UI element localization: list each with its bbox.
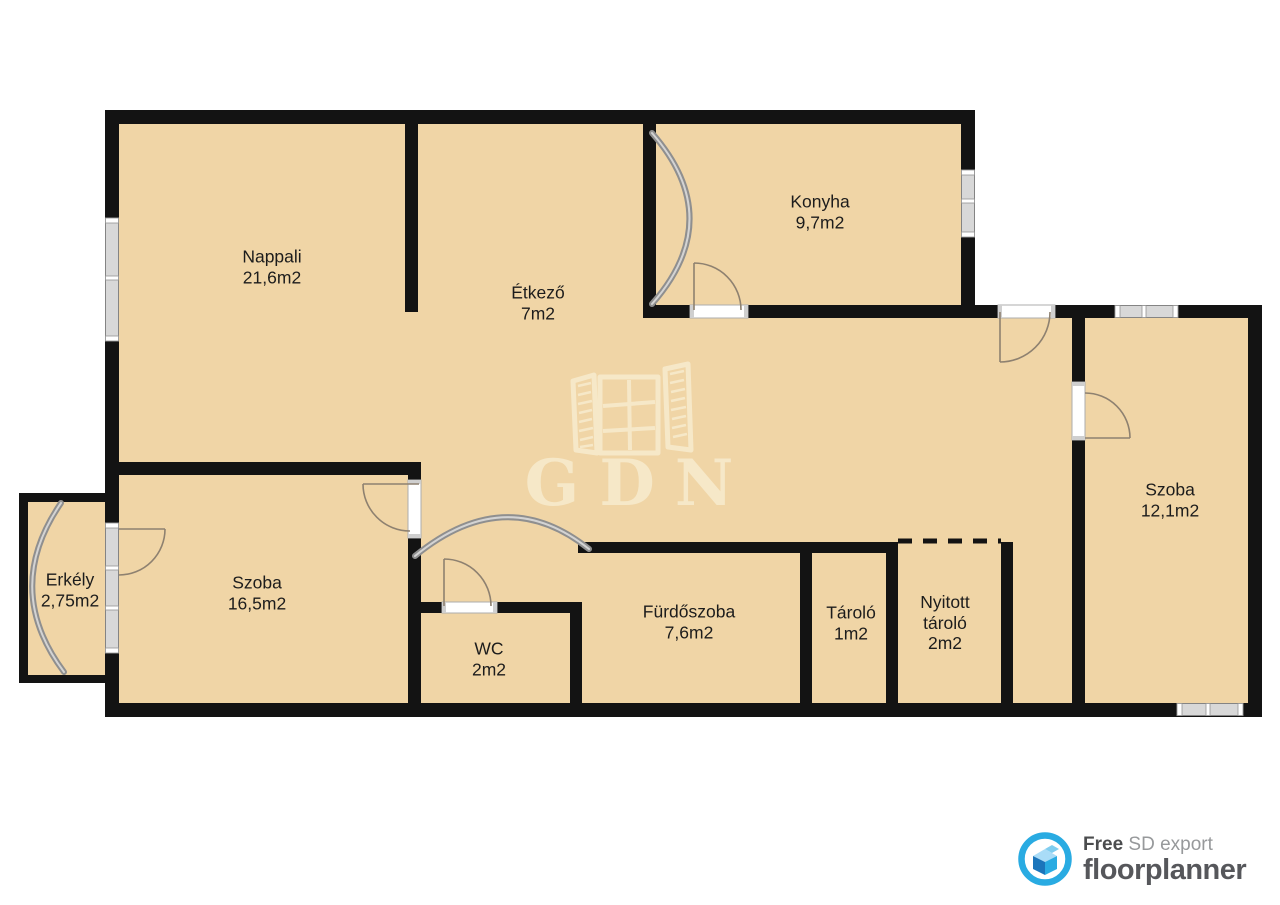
room-name: Nappali [242,246,301,267]
room-name: Erkély [41,569,99,590]
room-name: Fürdőszoba [643,601,735,622]
wall-bedroom-left [1072,318,1085,703]
window-livingroom-left [106,218,119,341]
room-name: Szoba [228,572,286,593]
room-area: 21,6m2 [242,267,301,288]
wall-bathroom-top [578,542,895,553]
room-name: Tároló [826,602,876,623]
floor-areas [27,124,1248,703]
room-label-furdoszoba: Fürdőszoba 7,6m2 [643,601,735,642]
room-area: 9,7m2 [790,212,849,233]
room-label-etkezo: Étkező 7m2 [511,282,565,323]
room-name: Étkező [511,282,565,303]
threshold-bedroom-door [1072,382,1085,440]
floorplanner-logo-icon [1016,830,1074,888]
wall-storage-left [800,542,812,703]
wall-livingroom-bottom [105,462,421,475]
wall-open-storage-right [1001,542,1013,703]
room-name: Nyitott tároló [908,592,982,633]
footer-free-label: Free [1083,834,1123,855]
room-label-szoba-12: Szoba 12,1m2 [1141,479,1199,520]
room-label-konyha: Konyha 9,7m2 [790,191,849,232]
watermark-text: GDN [525,446,754,521]
room-area: 2m2 [472,659,506,680]
room-area: 2m2 [908,633,982,654]
footer-brand-wordmark: floorplanner [1083,855,1246,885]
room-label-nappali: Nappali 21,6m2 [242,246,301,287]
room-label-tarolo: Tároló 1m2 [826,602,876,643]
room-name: Konyha [790,191,849,212]
wall-outer-top [105,110,975,124]
window-balcony-door [106,523,119,653]
room-label-wc: WC 2m2 [472,638,506,679]
footer-export-line: Free SD export [1083,834,1246,855]
wall-balcony-left [19,493,28,683]
room-area: 7,6m2 [643,622,735,643]
floorplan-canvas: GDN Nappali 21,6m2 Étkező 7m2 Konyha 9,7… [0,0,1280,905]
room-name: Szoba [1141,479,1199,500]
wall-livingroom-divider [405,124,418,312]
threshold-wc-door [442,602,497,613]
wall-outer-bottom [105,703,1262,717]
wall-outer-right [1248,305,1262,717]
wall-storage-right [886,542,898,703]
room-name: WC [472,638,506,659]
room-label-nyitott-tarolo: Nyitott tároló 2m2 [908,592,982,654]
room-label-erkely: Erkély 2,75m2 [41,569,99,610]
threshold-room-door [408,480,421,538]
floorplanner-branding: Free SD export floorplanner [1016,830,1246,888]
room-area: 7m2 [511,303,565,324]
window-hall-top [1115,306,1178,318]
threshold-entry-door [998,305,1055,318]
room-area: 12,1m2 [1141,500,1199,521]
room-area: 1m2 [826,623,876,644]
footer-sd-export-label: SD export [1128,834,1212,855]
footer-text: Free SD export floorplanner [1083,834,1246,885]
window-bedroom-bottom [1177,704,1243,716]
floorplan-drawing: GDN [0,0,1280,905]
room-area: 2,75m2 [41,590,99,611]
room-label-szoba-16: Szoba 16,5m2 [228,572,286,613]
threshold-kitchen-door [690,305,748,318]
wall-kitchen-left [643,124,656,318]
room-area: 16,5m2 [228,593,286,614]
wall-balcony-bottom [19,675,105,683]
wall-wc-right [570,602,582,703]
window-kitchen-right [962,170,975,237]
